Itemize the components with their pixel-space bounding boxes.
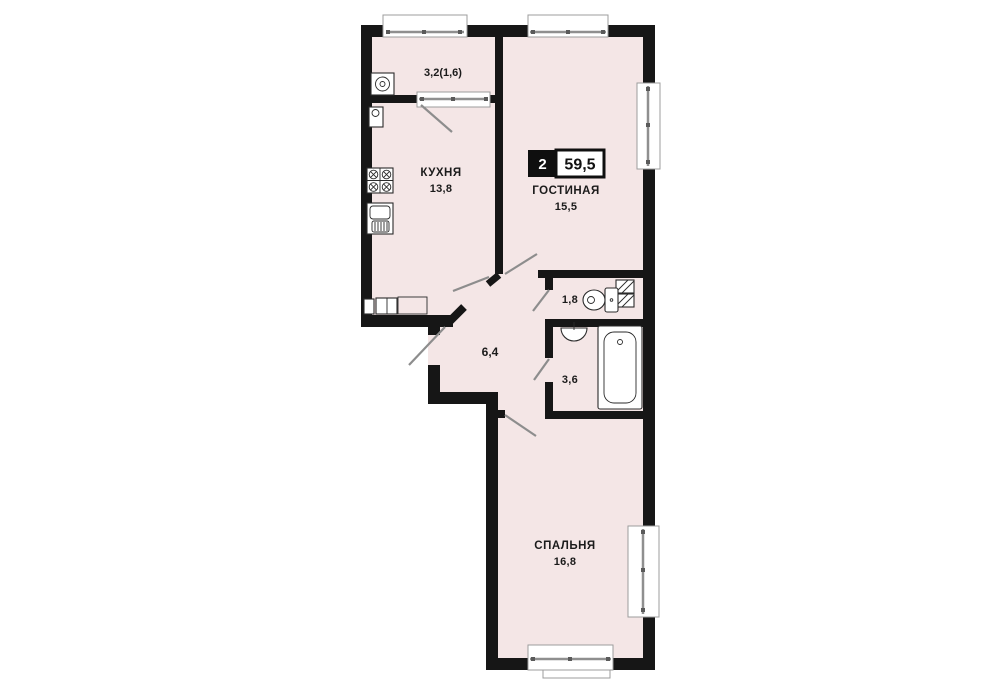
wall-segment	[486, 392, 498, 670]
room-label-bathroom-area: 3,6	[562, 374, 578, 386]
wall-segment	[545, 278, 553, 290]
floor-plan: 2 59,5 3,2(1,6) КУХНЯ 13,8 ГОСТИНАЯ 15,5…	[0, 0, 1006, 700]
room-label-living: ГОСТИНАЯ	[532, 185, 600, 197]
wall-segment	[538, 270, 655, 278]
room-label-kitchen: КУХНЯ	[420, 167, 461, 179]
vent-shaft-icon	[616, 280, 634, 307]
wall-segment	[545, 319, 553, 358]
bathtub-icon	[598, 326, 642, 409]
room-label-kitchen-area: 13,8	[430, 183, 453, 195]
wall-segment	[467, 25, 528, 37]
wall-segment	[361, 315, 453, 327]
living-room-top-window	[528, 15, 608, 37]
wall-segment	[361, 95, 417, 103]
apartment-badge: 2 59,5	[528, 150, 604, 177]
bedroom-side-window	[628, 526, 659, 617]
room-label-wc-area: 1,8	[562, 294, 578, 306]
room-label-hallway-area: 6,4	[482, 345, 499, 359]
room-label-living-area: 15,5	[555, 201, 578, 213]
room-label-balcony-area: 3,2(1,6)	[424, 67, 462, 79]
balcony-window	[383, 15, 467, 37]
badge-room-count: 2	[538, 156, 546, 173]
washing-machine-icon	[371, 73, 394, 95]
balcony-door-unit	[417, 92, 490, 107]
living-room-side-window	[637, 83, 660, 169]
room-label-bedroom: СПАЛЬНЯ	[534, 540, 595, 552]
kitchen-sink-icon	[367, 203, 393, 234]
toilet-icon	[583, 288, 618, 312]
bedroom-bottom-window	[528, 645, 613, 678]
badge-total-area: 59,5	[564, 157, 595, 174]
wall-segment	[545, 411, 655, 419]
floor-plan-canvas: 2 59,5 3,2(1,6) КУХНЯ 13,8 ГОСТИНАЯ 15,5…	[0, 0, 1006, 700]
room-label-bedroom-area: 16,8	[554, 556, 577, 568]
wall-segment	[486, 410, 505, 418]
water-heater-icon	[369, 107, 383, 127]
wall-segment	[495, 37, 503, 274]
stove-icon	[367, 168, 393, 193]
